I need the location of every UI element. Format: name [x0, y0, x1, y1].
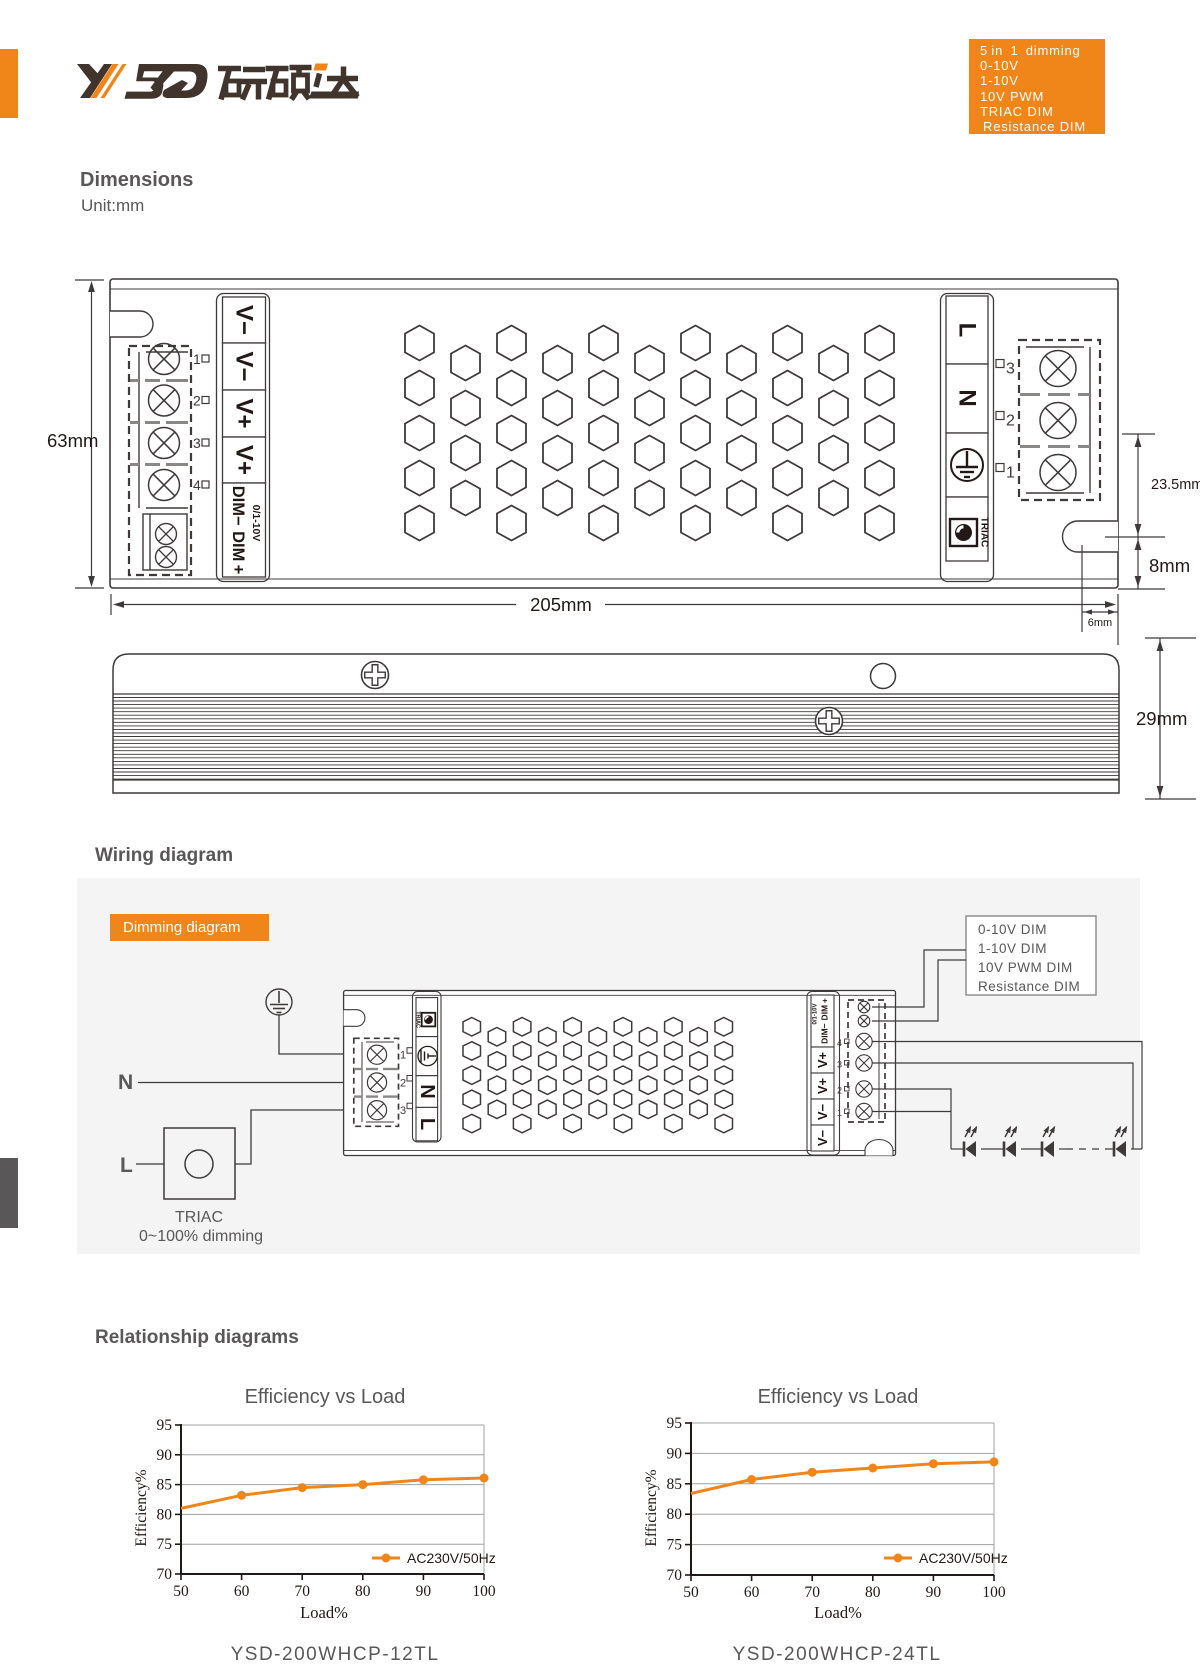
svg-text:90: 90 — [416, 1583, 432, 1600]
svg-text:80: 80 — [355, 1583, 371, 1600]
svg-text:80: 80 — [667, 1506, 683, 1523]
svg-text:90: 90 — [667, 1445, 683, 1462]
svg-text:80: 80 — [157, 1506, 173, 1523]
svg-text:Efficiency%: Efficiency% — [643, 1469, 660, 1546]
svg-text:AC230V/50Hz: AC230V/50Hz — [919, 1550, 1008, 1566]
svg-text:85: 85 — [157, 1477, 173, 1494]
svg-text:AC230V/50Hz: AC230V/50Hz — [407, 1550, 496, 1566]
svg-text:85: 85 — [667, 1476, 683, 1493]
svg-text:YSD-200WHCP-12TL: YSD-200WHCP-12TL — [231, 1644, 440, 1665]
svg-text:80: 80 — [865, 1584, 881, 1601]
svg-text:Load%: Load% — [814, 1603, 862, 1622]
svg-text:75: 75 — [667, 1537, 683, 1554]
svg-text:95: 95 — [157, 1417, 173, 1434]
svg-text:YSD-200WHCP-24TL: YSD-200WHCP-24TL — [733, 1644, 942, 1665]
svg-text:Efficiency vs Load: Efficiency vs Load — [245, 1386, 406, 1408]
svg-text:60: 60 — [744, 1584, 760, 1601]
svg-text:90: 90 — [157, 1447, 173, 1464]
svg-text:50: 50 — [173, 1583, 189, 1600]
svg-text:70: 70 — [804, 1584, 820, 1601]
svg-text:60: 60 — [234, 1583, 250, 1600]
svg-text:70: 70 — [157, 1566, 173, 1583]
svg-text:95: 95 — [667, 1415, 683, 1432]
svg-text:Load%: Load% — [300, 1603, 348, 1622]
svg-text:75: 75 — [157, 1536, 173, 1553]
svg-text:70: 70 — [667, 1567, 683, 1584]
svg-text:90: 90 — [926, 1584, 942, 1601]
svg-text:Efficiency vs Load: Efficiency vs Load — [758, 1386, 919, 1408]
svg-text:100: 100 — [982, 1584, 1006, 1601]
svg-text:50: 50 — [683, 1584, 699, 1601]
svg-text:70: 70 — [294, 1583, 310, 1600]
svg-text:100: 100 — [472, 1583, 496, 1600]
svg-text:Efficiency%: Efficiency% — [133, 1469, 150, 1546]
